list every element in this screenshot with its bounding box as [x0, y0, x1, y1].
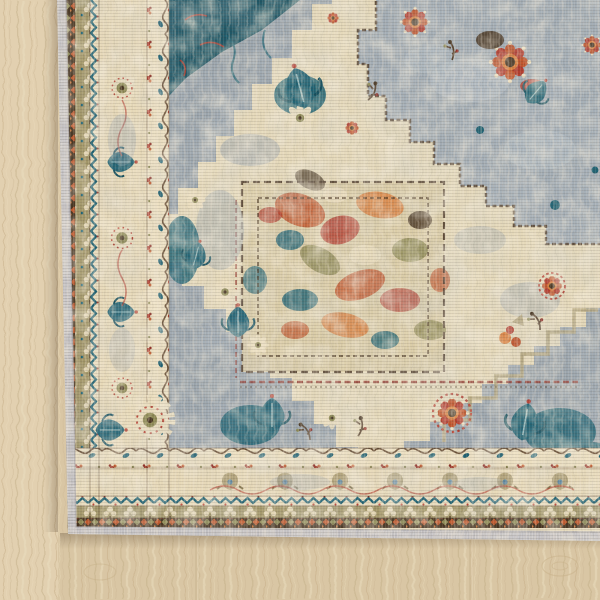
- rug-shadow-left: [44, 0, 58, 532]
- rug: [57, 0, 600, 541]
- rug-photo: [0, 0, 600, 600]
- pile-wear-streaks: [57, 0, 600, 541]
- rug-photo-canvas: [0, 0, 600, 600]
